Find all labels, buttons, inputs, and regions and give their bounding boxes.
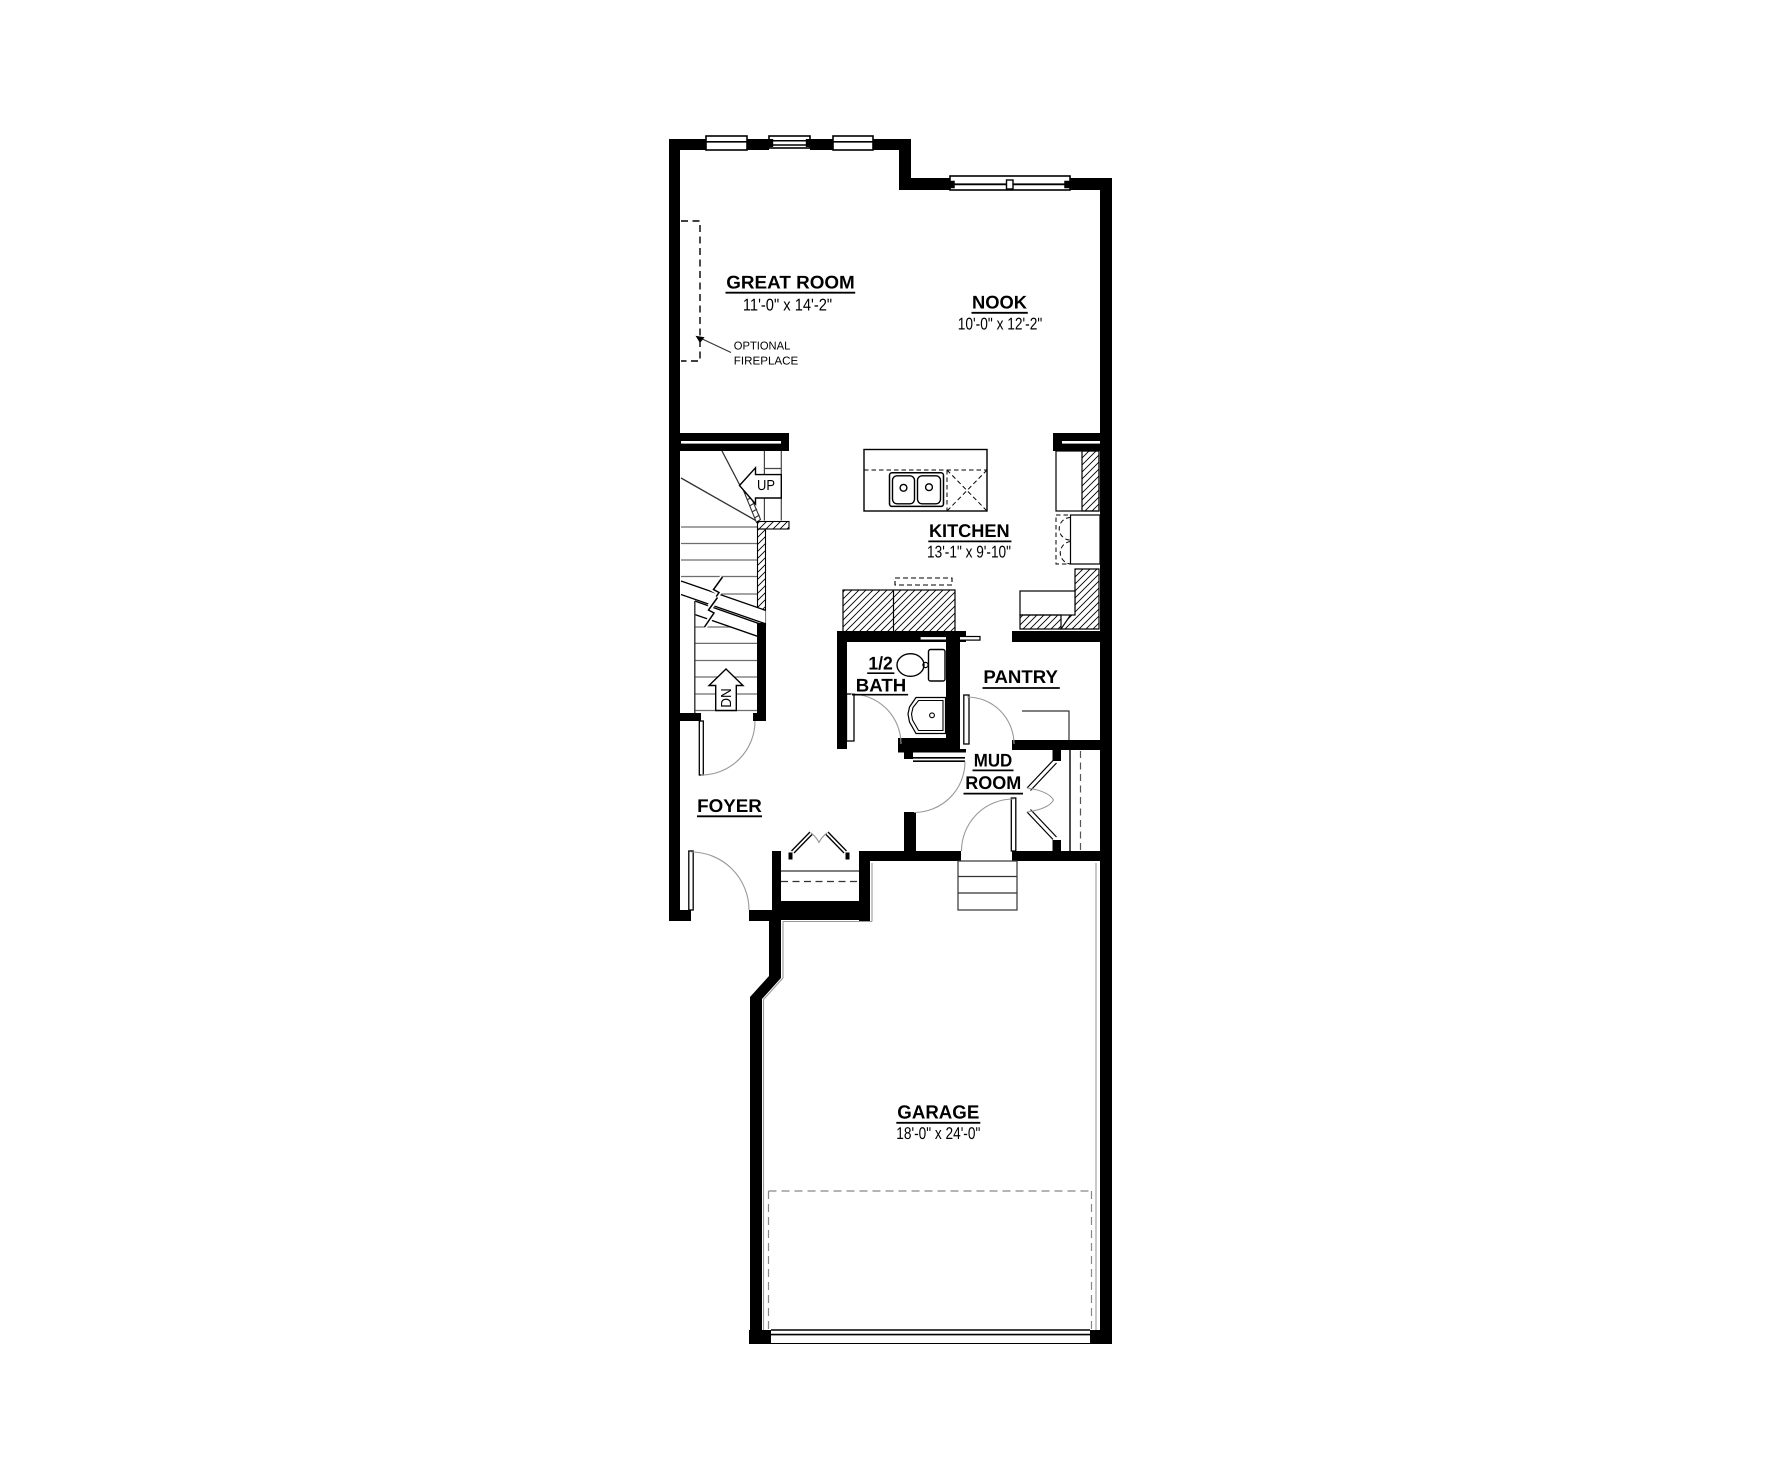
svg-text:FOYER: FOYER (697, 795, 762, 816)
svg-text:PANTRY: PANTRY (983, 666, 1058, 687)
svg-text:11'-0" x 14'-2": 11'-0" x 14'-2" (743, 296, 832, 315)
svg-text:OPTIONAL: OPTIONAL (734, 340, 791, 352)
svg-text:KITCHEN: KITCHEN (929, 520, 1010, 541)
svg-text:DN: DN (719, 688, 735, 708)
svg-text:FIREPLACE: FIREPLACE (734, 355, 799, 367)
svg-text:GARAGE: GARAGE (897, 1103, 979, 1124)
svg-text:18'-0" x 24'-0": 18'-0" x 24'-0" (896, 1124, 980, 1143)
svg-text:GREAT ROOM: GREAT ROOM (726, 272, 855, 293)
svg-text:UP: UP (757, 478, 775, 494)
svg-text:BATH: BATH (856, 675, 906, 696)
svg-text:MUD: MUD (974, 750, 1013, 771)
svg-text:13'-1" x 9'-10": 13'-1" x 9'-10" (927, 542, 1011, 561)
svg-text:ROOM: ROOM (965, 772, 1021, 793)
svg-text:NOOK: NOOK (972, 292, 1028, 313)
svg-text:1/2: 1/2 (868, 653, 893, 674)
svg-text:10'-0" x 12'-2": 10'-0" x 12'-2" (958, 314, 1043, 333)
